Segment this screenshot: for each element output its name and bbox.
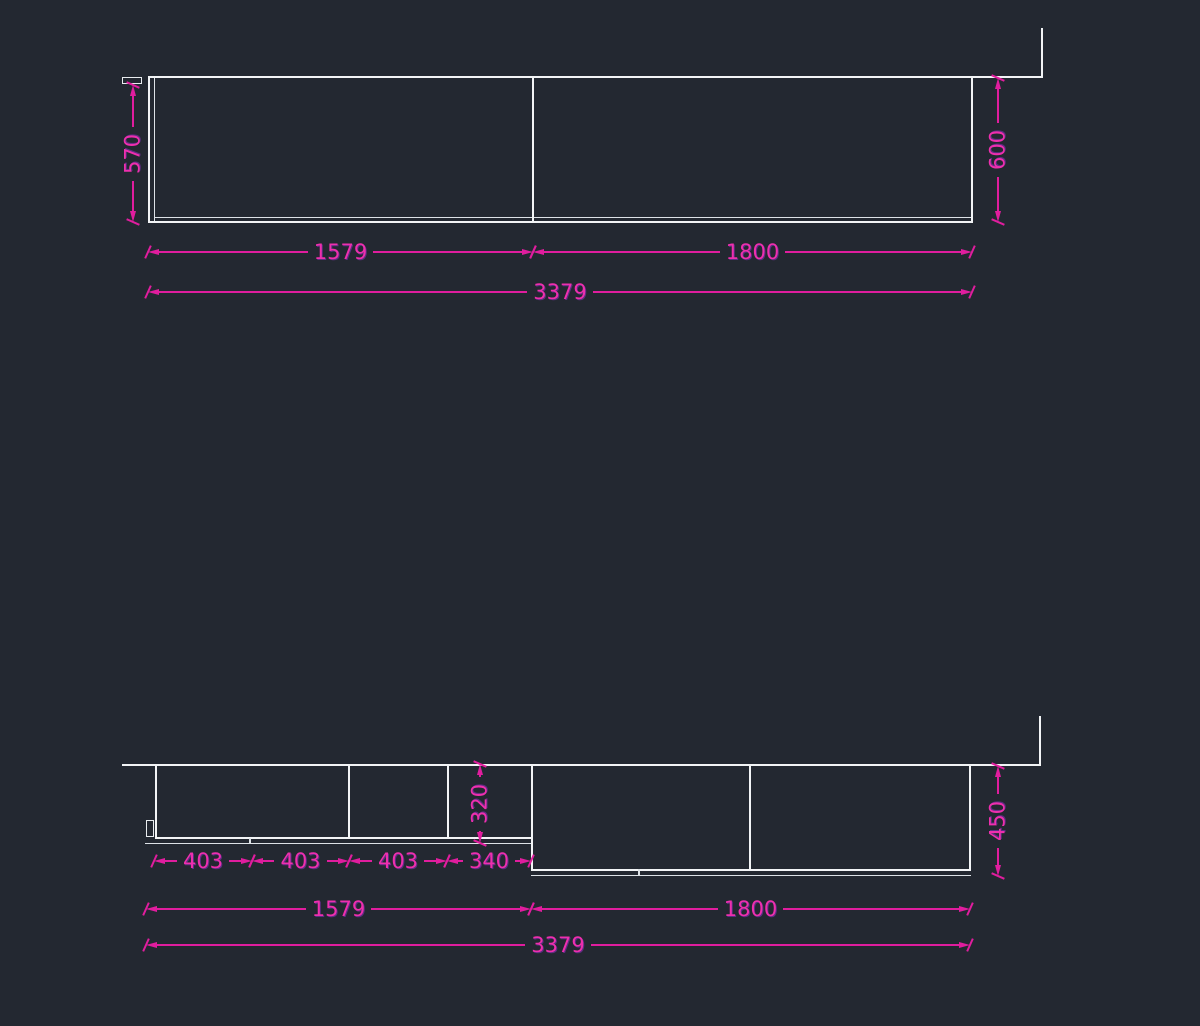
dim-label: 403 [177,851,229,872]
right-cabinet-joint-tick[interactable] [638,869,640,876]
dim-line [997,777,999,794]
dim-line [997,177,999,211]
counter-outline[interactable] [148,76,973,223]
right-cabinet-outline[interactable] [531,766,971,871]
dim-label: 1800 [718,899,783,920]
dim-width-3379-bottom[interactable]: 3379 [146,937,970,953]
dim-line [785,251,961,253]
counter-inner-left-line[interactable] [154,78,155,221]
left-cabinet-joint-tick[interactable] [249,838,251,844]
dim-label-wrap: 450 [990,794,1006,848]
wall-corner-vertical-line[interactable] [1041,28,1043,78]
dim-label: 340 [463,851,515,872]
dim-depth-600[interactable]: 600 [990,78,1006,222]
dim-depth-570[interactable]: 570 [125,85,141,222]
left-cabinet-lower-line[interactable] [145,843,531,844]
cad-viewport[interactable]: 570 600 1579 1 [0,0,1200,1026]
dim-line [157,908,306,910]
dim-label: 403 [372,851,424,872]
dim-label: 570 [123,133,144,173]
counter-inner-bottom-line[interactable] [154,217,971,218]
dim-line [157,944,525,946]
left-end-panel[interactable] [146,820,154,837]
dim-width-1579-top[interactable]: 1579 [148,244,533,260]
dim-line [997,89,999,123]
dim-line [229,860,241,862]
dim-line [327,860,338,862]
dim-width-1800-top[interactable]: 1800 [533,244,972,260]
dim-line [263,860,274,862]
dim-line [159,251,308,253]
dim-label-wrap: 600 [990,123,1006,177]
dim-line [371,908,520,910]
dim-label: 1579 [308,242,373,263]
dim-width-1579-bottom[interactable]: 1579 [146,901,531,917]
dim-label: 600 [988,130,1009,170]
dim-line [132,181,134,212]
right-cabinet-lower-line[interactable] [531,875,971,876]
dim-line [593,291,961,293]
dim-line [591,944,959,946]
dim-label: 3379 [525,935,590,956]
dim-line [373,251,522,253]
dim-label: 1579 [306,899,371,920]
dim-depth-450[interactable]: 450 [990,766,1006,876]
dim-label: 3379 [527,282,592,303]
right-cabinet-divider[interactable] [749,766,751,871]
dim-line [165,860,177,862]
dim-label: 1800 [720,242,785,263]
dim-label: 403 [274,851,326,872]
dim-label-wrap: 570 [125,127,141,181]
dim-depth-320[interactable]: 320 [472,764,488,843]
dim-door-403-2[interactable]: 403 [252,853,349,869]
left-cabinet-divider-2[interactable] [447,766,449,839]
dim-label: 320 [470,783,491,823]
dim-line [360,860,372,862]
dim-door-340[interactable]: 340 [447,853,531,869]
dim-line [132,96,134,127]
wall-corner-vertical-line[interactable] [1039,716,1041,766]
dim-line [159,291,527,293]
dim-line [783,908,959,910]
dim-label-wrap: 320 [472,777,488,831]
wall-corner-horizontal-line[interactable] [973,76,1043,78]
dim-line [997,848,999,865]
dim-line [424,860,436,862]
dim-width-3379-top[interactable]: 3379 [148,284,972,300]
left-cabinet-divider-1[interactable] [348,766,350,839]
dim-width-1800-bottom[interactable]: 1800 [531,901,970,917]
dim-door-403-3[interactable]: 403 [349,853,447,869]
dim-door-403-1[interactable]: 403 [154,853,252,869]
counter-section-divider[interactable] [532,78,534,221]
dim-line [542,908,718,910]
dim-label: 450 [988,801,1009,841]
dim-line [544,251,720,253]
